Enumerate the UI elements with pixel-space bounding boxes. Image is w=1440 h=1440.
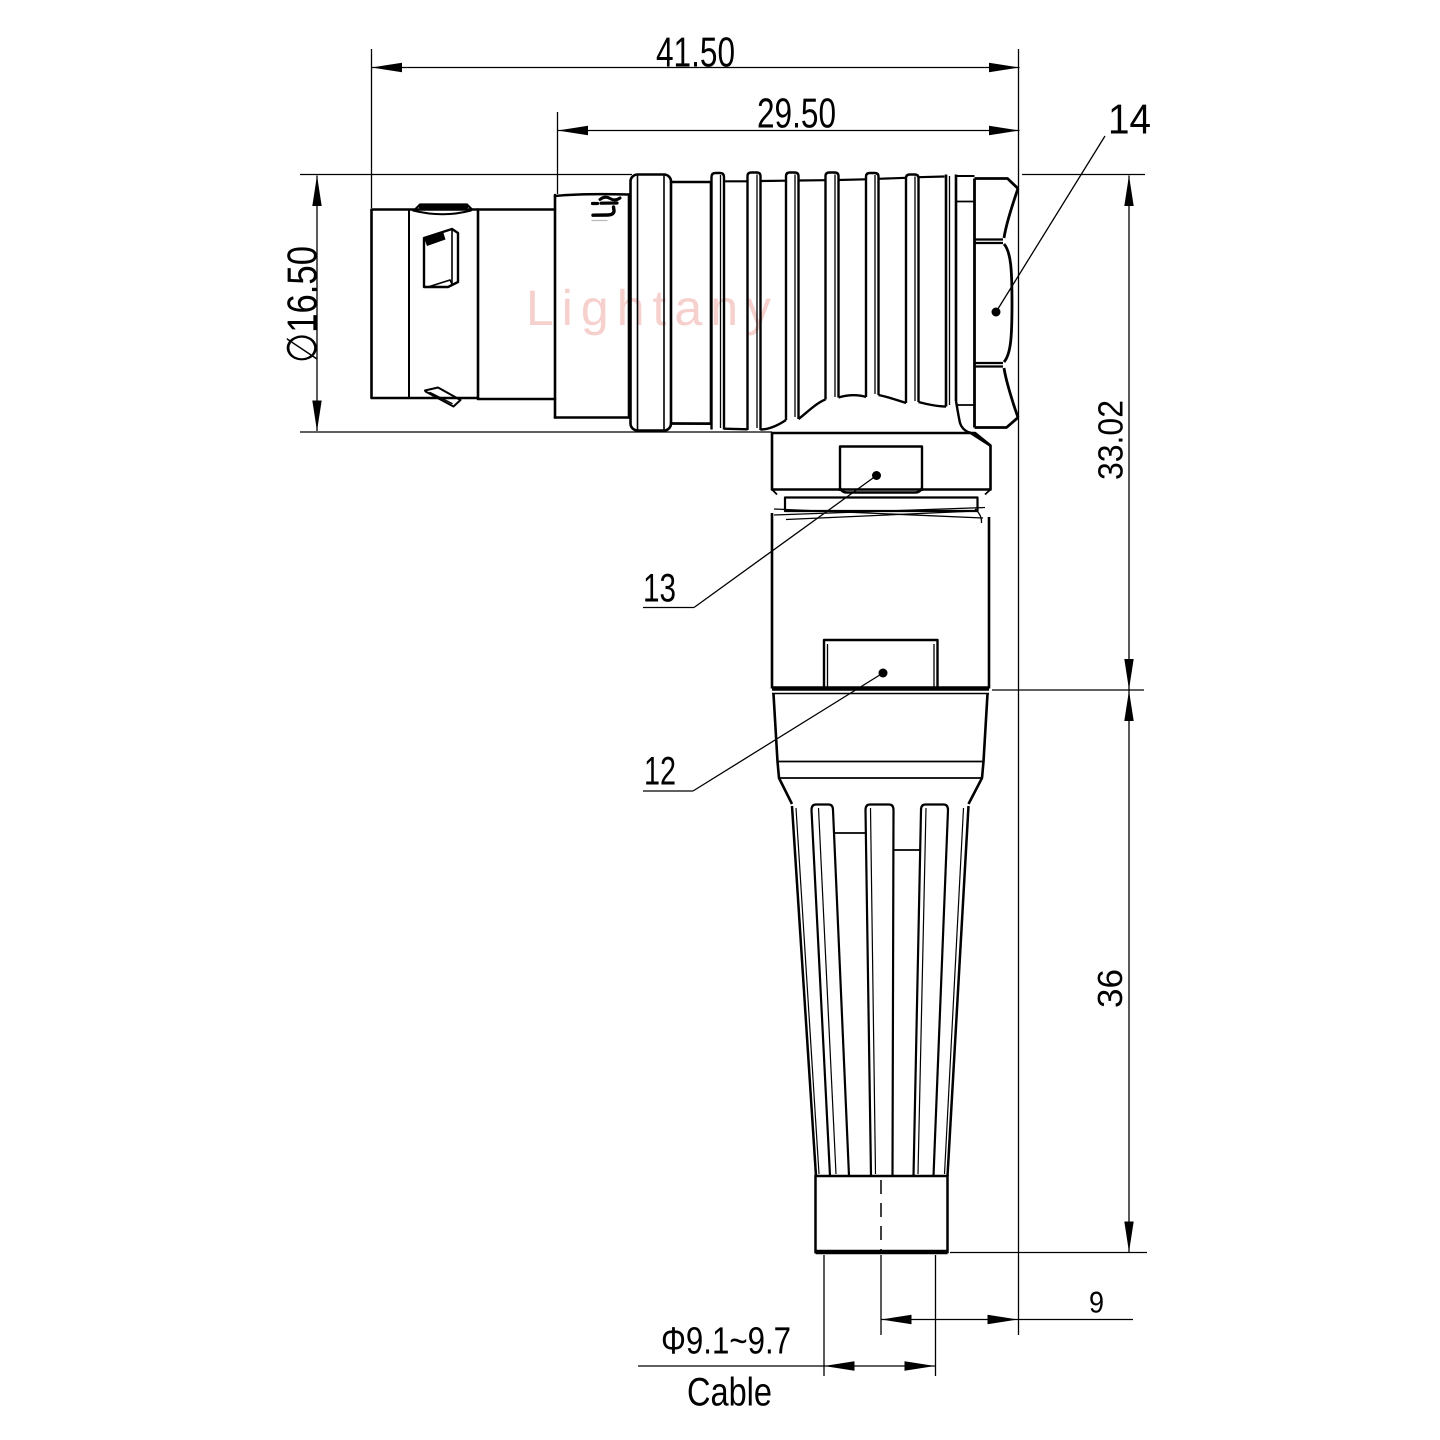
svg-text:12: 12	[644, 750, 676, 794]
svg-text:Lightany: Lightany	[526, 280, 779, 336]
svg-text:29.50: 29.50	[757, 90, 836, 137]
svg-text:36: 36	[1091, 969, 1130, 1008]
svg-text:Cable: Cable	[687, 1371, 772, 1415]
svg-text:33.02: 33.02	[1092, 400, 1131, 480]
svg-text:9: 9	[1089, 1287, 1104, 1320]
svg-text:14: 14	[1108, 96, 1151, 143]
svg-text:Φ9.1~9.7: Φ9.1~9.7	[661, 1321, 791, 1363]
svg-text:13: 13	[643, 567, 676, 611]
svg-text:41.50: 41.50	[656, 29, 735, 76]
svg-text:∅16.50: ∅16.50	[279, 246, 326, 363]
